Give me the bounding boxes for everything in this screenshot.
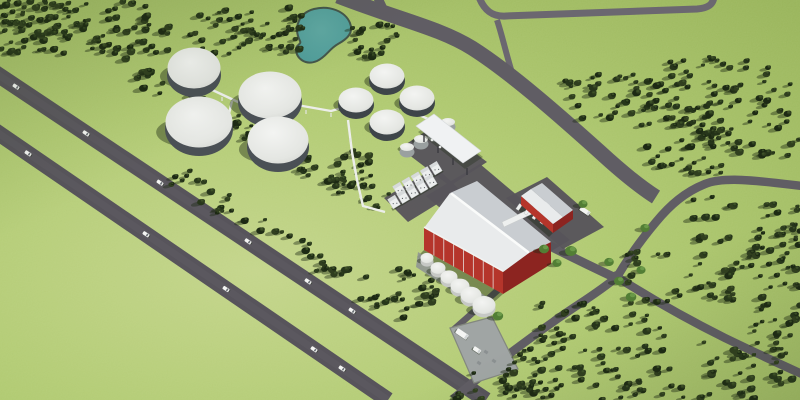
vignette-overlay [0, 0, 800, 400]
render-viewport [0, 0, 800, 400]
biogas-plant-aerial-render [0, 0, 800, 400]
